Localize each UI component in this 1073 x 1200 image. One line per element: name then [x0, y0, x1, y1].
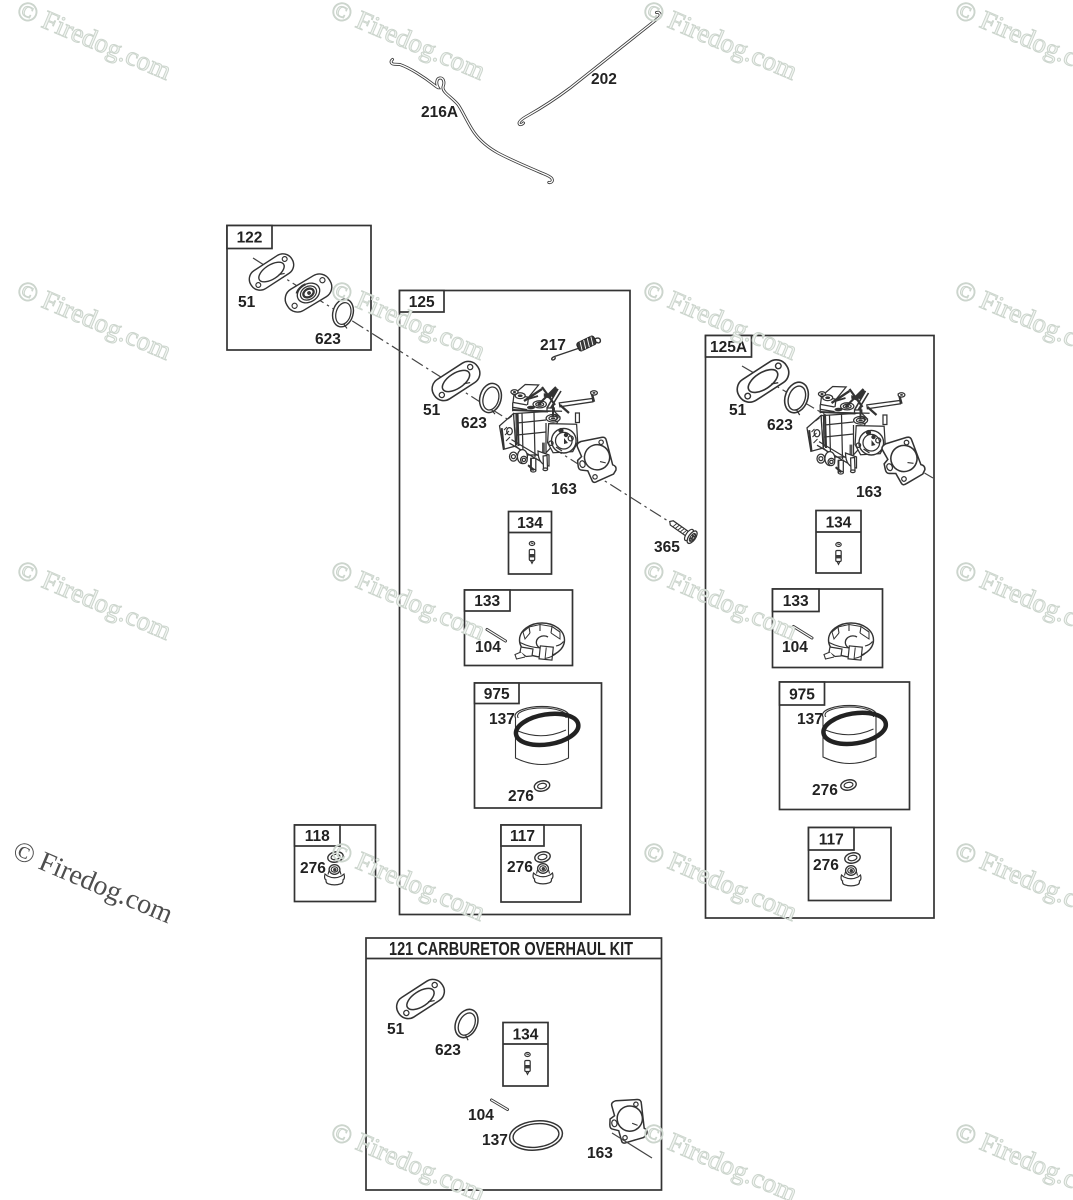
- svg-text:© Firedog.com: © Firedog.com: [951, 274, 1073, 366]
- svg-text:118: 118: [305, 828, 330, 845]
- svg-text:121 CARBURETOR OVERHAUL KIT: 121 CARBURETOR OVERHAUL KIT: [389, 939, 633, 959]
- svg-text:51: 51: [423, 402, 441, 419]
- svg-text:© Firedog.com: © Firedog.com: [951, 0, 1073, 86]
- svg-text:365: 365: [654, 539, 680, 556]
- svg-text:216A: 216A: [421, 104, 458, 121]
- svg-text:© Firedog.com: © Firedog.com: [639, 0, 802, 86]
- svg-text:© Firedog.com: © Firedog.com: [8, 835, 177, 930]
- svg-text:163: 163: [587, 1145, 613, 1162]
- svg-text:134: 134: [513, 1027, 539, 1044]
- svg-text:163: 163: [856, 484, 882, 501]
- svg-text:© Firedog.com: © Firedog.com: [327, 0, 490, 86]
- svg-text:276: 276: [508, 788, 534, 805]
- svg-text:51: 51: [387, 1021, 405, 1038]
- svg-text:202: 202: [591, 71, 617, 88]
- svg-text:© Firedog.com: © Firedog.com: [951, 1116, 1073, 1200]
- svg-text:276: 276: [812, 782, 838, 799]
- svg-text:137: 137: [482, 1132, 508, 1149]
- svg-text:137: 137: [797, 711, 823, 728]
- svg-text:© Firedog.com: © Firedog.com: [639, 1116, 802, 1200]
- svg-text:623: 623: [767, 417, 793, 434]
- svg-text:623: 623: [315, 331, 341, 348]
- svg-text:137: 137: [489, 711, 515, 728]
- svg-text:133: 133: [474, 593, 500, 610]
- svg-text:975: 975: [484, 686, 510, 703]
- svg-text:© Firedog.com: © Firedog.com: [13, 274, 176, 366]
- svg-text:623: 623: [435, 1042, 461, 1059]
- svg-text:51: 51: [729, 402, 747, 419]
- svg-text:134: 134: [517, 515, 543, 532]
- svg-text:276: 276: [507, 859, 533, 876]
- svg-text:© Firedog.com: © Firedog.com: [951, 835, 1073, 927]
- svg-text:© Firedog.com: © Firedog.com: [13, 0, 176, 86]
- svg-text:217: 217: [540, 337, 566, 354]
- svg-text:134: 134: [826, 515, 852, 532]
- svg-text:122: 122: [237, 230, 263, 247]
- svg-text:117: 117: [510, 828, 535, 845]
- svg-text:51: 51: [238, 294, 256, 311]
- svg-text:276: 276: [300, 860, 326, 877]
- svg-text:276: 276: [813, 857, 839, 874]
- svg-text:117: 117: [819, 832, 844, 849]
- svg-text:© Firedog.com: © Firedog.com: [951, 554, 1073, 646]
- svg-text:975: 975: [789, 687, 815, 704]
- svg-text:623: 623: [461, 415, 487, 432]
- svg-text:© Firedog.com: © Firedog.com: [13, 554, 176, 646]
- svg-text:133: 133: [783, 593, 809, 610]
- svg-text:104: 104: [468, 1107, 494, 1124]
- svg-text:163: 163: [551, 481, 577, 498]
